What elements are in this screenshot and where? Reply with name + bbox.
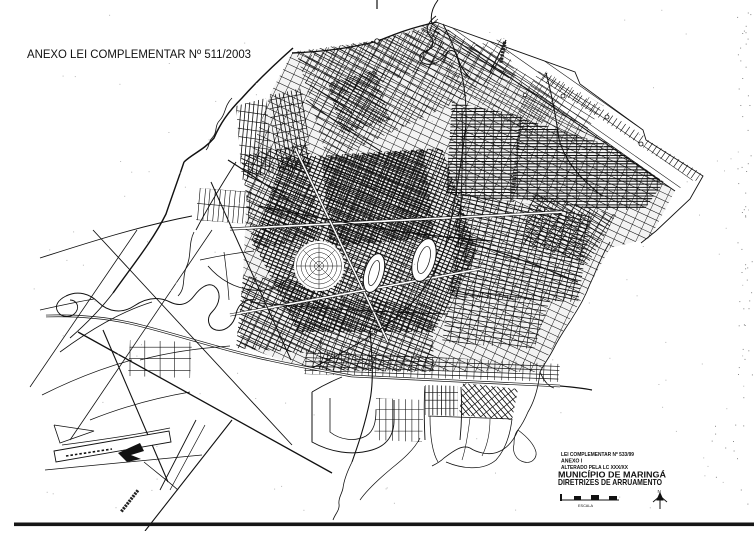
svg-text:N: N	[658, 489, 661, 494]
svg-text:LEI COMPLEMENTAR Nº 533/99: LEI COMPLEMENTAR Nº 533/99	[561, 452, 634, 458]
svg-text:ESCALA: ESCALA	[578, 504, 593, 508]
svg-text:ANEXO I: ANEXO I	[561, 459, 583, 465]
svg-text:ANEXO LEI COMPLEMENTAR Nº 511/: ANEXO LEI COMPLEMENTAR Nº 511/2003	[27, 47, 251, 61]
svg-text:DIRETRIZES DE ARRUAMENTO: DIRETRIZES DE ARRUAMENTO	[558, 477, 662, 487]
